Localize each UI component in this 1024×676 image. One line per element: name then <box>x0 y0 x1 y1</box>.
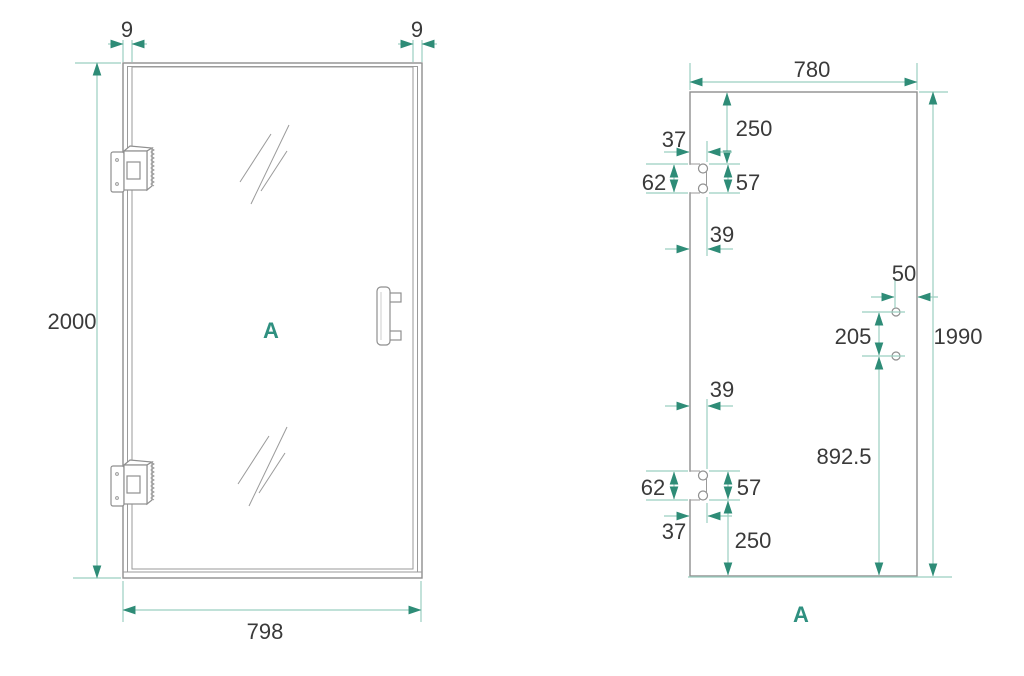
glass-reflection-hatch-bottom <box>238 427 287 506</box>
technical-drawing: 9 9 2000 798 A <box>0 0 1024 676</box>
dim-door-width: 798 <box>123 581 421 644</box>
dim-value: 57 <box>736 170 760 195</box>
dim-value: 37 <box>662 519 686 544</box>
dim-handle-from-bottom: 892.5 <box>816 357 879 575</box>
handle-holes <box>892 308 900 360</box>
dim-value: 1990 <box>934 324 983 349</box>
dim-value: 798 <box>247 619 284 644</box>
dim-hinge-width-bottom: 39 <box>665 377 734 469</box>
dim-value: 50 <box>892 261 916 286</box>
dim-hinge-to-bottom: 250 <box>728 501 771 575</box>
dim-handle-pitch: 205 <box>835 312 905 356</box>
dim-value: 250 <box>735 528 772 553</box>
glass-reflection-hatch-top <box>240 125 289 204</box>
view-label-door: A <box>263 318 279 343</box>
hinge-cutout-top <box>689 164 708 193</box>
dim-value: 9 <box>121 17 133 42</box>
glass-panel-view: 780 250 37 62 57 <box>641 57 983 627</box>
dim-value: 205 <box>835 324 872 349</box>
dim-frame-thickness-left: 9 <box>108 17 147 62</box>
dim-panel-width: 780 <box>690 57 917 90</box>
hinge-bottom <box>111 460 154 506</box>
dim-hinge-height-bottom: 62 <box>641 471 688 500</box>
dim-frame-thickness-right: 9 <box>398 17 437 62</box>
dim-value: 780 <box>794 57 831 82</box>
dim-top-to-hinge: 250 <box>727 93 772 163</box>
hinge-cutout-bottom <box>689 471 708 500</box>
dim-handle-edge-offset: 50 <box>871 261 938 308</box>
dim-value: 39 <box>710 377 734 402</box>
dim-value: 892.5 <box>816 444 871 469</box>
dim-hinge-pitch-bottom: 57 <box>709 471 761 500</box>
hinge-top <box>111 146 154 192</box>
door-front-view: 9 9 2000 798 A <box>48 17 437 644</box>
dim-value: 2000 <box>48 309 97 334</box>
dim-value: 62 <box>641 475 665 500</box>
dim-value: 9 <box>411 17 423 42</box>
dim-hinge-inset-bottom: 37 <box>662 503 732 544</box>
dim-value: 62 <box>642 170 666 195</box>
dim-value: 250 <box>736 116 773 141</box>
dim-hinge-inset-top: 37 <box>662 127 732 162</box>
glass-panel-outline <box>690 92 917 576</box>
dim-value: 57 <box>737 475 761 500</box>
dim-value: 37 <box>662 127 686 152</box>
dim-door-height: 2000 <box>48 63 121 578</box>
dim-hinge-pitch-top: 57 <box>709 164 760 195</box>
door-handle <box>377 287 401 345</box>
dim-hinge-height-top: 62 <box>642 164 688 195</box>
dim-hinge-width-top: 39 <box>665 197 734 256</box>
dim-value: 39 <box>710 222 734 247</box>
view-label-panel: A <box>793 602 809 627</box>
